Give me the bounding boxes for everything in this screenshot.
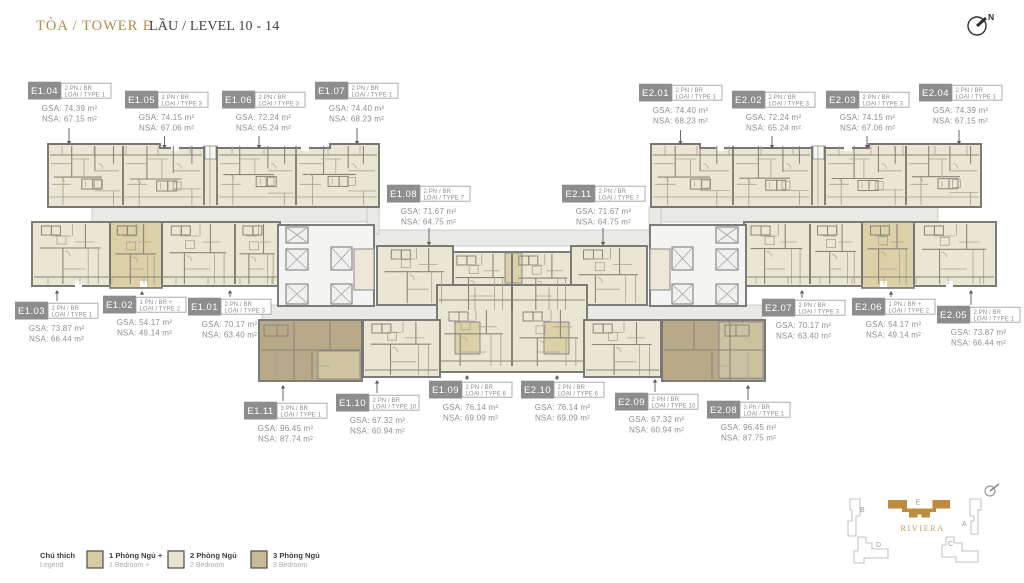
- svg-text:GSA: 74.15 m²: GSA: 74.15 m²: [139, 113, 195, 122]
- svg-text:NSA: 67.06 m²: NSA: 67.06 m²: [840, 124, 895, 133]
- svg-text:E1.05: E1.05: [128, 95, 155, 106]
- svg-text:LOẠI / TYPE 1: LOẠI / TYPE 1: [281, 412, 322, 418]
- svg-text:LOẠI / TYPE 3: LOẠI / TYPE 3: [225, 308, 266, 314]
- svg-text:2 PN / BR: 2 PN / BR: [956, 88, 984, 94]
- svg-text:E2.01: E2.01: [642, 88, 669, 99]
- svg-text:GSA: 96.45 m²: GSA: 96.45 m²: [721, 423, 777, 432]
- svg-text:E2.11: E2.11: [565, 189, 591, 200]
- svg-text:NSA: 69.09 m²: NSA: 69.09 m²: [443, 414, 498, 423]
- svg-text:2 PN / BR: 2 PN / BR: [373, 398, 401, 404]
- svg-text:RIVIERA: RIVIERA: [901, 524, 945, 533]
- svg-text:2 PN / BR: 2 PN / BR: [424, 189, 452, 195]
- svg-text:E1.08: E1.08: [390, 189, 417, 200]
- svg-text:E2.03: E2.03: [829, 95, 856, 106]
- svg-text:NSA: 49.14 m²: NSA: 49.14 m²: [117, 329, 172, 338]
- svg-text:NSA: 65.24 m²: NSA: 65.24 m²: [746, 124, 801, 133]
- svg-text:2 PN / BR: 2 PN / BR: [652, 397, 680, 403]
- svg-text:NSA: 68.23 m²: NSA: 68.23 m²: [329, 115, 384, 124]
- svg-text:GSA: 73.87 m²: GSA: 73.87 m²: [29, 324, 85, 333]
- svg-text:NSA: 66.44 m²: NSA: 66.44 m²: [29, 335, 84, 344]
- svg-text:2 Bedroom: 2 Bedroom: [190, 562, 224, 569]
- svg-text:E1.01: E1.01: [191, 302, 218, 313]
- svg-text:NSA: 64.75 m²: NSA: 64.75 m²: [401, 218, 456, 227]
- svg-text:NSA: 63.40 m²: NSA: 63.40 m²: [202, 331, 257, 340]
- svg-text:GSA: 67.32 m²: GSA: 67.32 m²: [350, 416, 406, 425]
- svg-text:E2.04: E2.04: [922, 88, 949, 99]
- svg-text:B: B: [860, 507, 865, 514]
- svg-text:LOẠI / TYPE 7: LOẠI / TYPE 7: [424, 195, 465, 201]
- svg-text:LOẠI / TYPE 1: LOẠI / TYPE 1: [974, 316, 1015, 322]
- svg-text:GSA: 74.40 m²: GSA: 74.40 m²: [329, 104, 385, 113]
- svg-text:GSA: 73.87 m²: GSA: 73.87 m²: [951, 328, 1007, 337]
- svg-text:NSA: 87.75 m²: NSA: 87.75 m²: [721, 434, 776, 443]
- svg-text:NSA: 63.40 m²: NSA: 63.40 m²: [776, 332, 831, 341]
- svg-text:GSA: 72.24 m²: GSA: 72.24 m²: [746, 113, 802, 122]
- svg-text:GSA: 67.32 m²: GSA: 67.32 m²: [629, 415, 685, 424]
- svg-text:E2.07: E2.07: [765, 303, 792, 314]
- svg-text:LOẠI / TYPE 1: LOẠI / TYPE 1: [676, 94, 717, 100]
- svg-text:GSA: 76.14 m²: GSA: 76.14 m²: [535, 403, 591, 412]
- svg-text:2 PN / BR: 2 PN / BR: [974, 310, 1002, 316]
- svg-text:1 PN / BR +: 1 PN / BR +: [889, 302, 922, 308]
- svg-text:2 PN / BR: 2 PN / BR: [225, 302, 253, 308]
- svg-text:2 PN / BR: 2 PN / BR: [799, 303, 827, 309]
- svg-text:2 Phòng Ngủ: 2 Phòng Ngủ: [190, 551, 237, 560]
- svg-text:TÒA / TOWER E: TÒA / TOWER E: [36, 17, 153, 34]
- svg-text:3 Ph / BR: 3 Ph / BR: [744, 405, 771, 411]
- svg-text:LOẠI / TYPE 3: LOẠI / TYPE 3: [799, 309, 840, 315]
- svg-text:GSA: 70.17 m²: GSA: 70.17 m²: [776, 321, 832, 330]
- svg-text:3 PN / BR: 3 PN / BR: [281, 406, 309, 412]
- svg-text:E2.05: E2.05: [940, 310, 967, 321]
- svg-text:GSA: 96.45 m²: GSA: 96.45 m²: [258, 424, 314, 433]
- svg-text:E1.04: E1.04: [31, 86, 58, 97]
- svg-text:E1.09: E1.09: [432, 385, 459, 396]
- svg-text:GSA: 54.17 m²: GSA: 54.17 m²: [866, 320, 922, 329]
- svg-text:2 PN / BR: 2 PN / BR: [599, 189, 627, 195]
- svg-text:LOẠI / TYPE 3: LOẠI / TYPE 3: [259, 101, 300, 107]
- svg-text:GSA: 74.40 m²: GSA: 74.40 m²: [653, 106, 709, 115]
- svg-text:2 PN / BR: 2 PN / BR: [676, 88, 704, 94]
- svg-text:N: N: [988, 12, 994, 22]
- svg-text:2 PN / BR: 2 PN / BR: [65, 86, 93, 92]
- svg-text:E1.03: E1.03: [18, 306, 45, 317]
- svg-text:NSA: 64.75 m²: NSA: 64.75 m²: [576, 218, 631, 227]
- svg-text:GSA: 54.17 m²: GSA: 54.17 m²: [117, 318, 173, 327]
- svg-text:E1.02: E1.02: [106, 300, 133, 311]
- svg-text:NSA: 68.23 m²: NSA: 68.23 m²: [653, 117, 708, 126]
- svg-text:NSA: 66.44 m²: NSA: 66.44 m²: [951, 339, 1006, 348]
- svg-text:E: E: [916, 500, 921, 507]
- svg-text:LOẠI / TYPE 2: LOẠI / TYPE 2: [889, 308, 930, 314]
- svg-text:E1.11: E1.11: [247, 406, 273, 417]
- svg-text:3 Bedroom: 3 Bedroom: [273, 562, 307, 569]
- svg-text:D: D: [876, 542, 881, 549]
- svg-text:E2.08: E2.08: [710, 405, 737, 416]
- svg-text:LOẠI / TYPE 6: LOẠI / TYPE 6: [466, 391, 507, 397]
- svg-text:3 Phòng Ngủ: 3 Phòng Ngủ: [273, 551, 320, 560]
- svg-text:LOẠI / TYPE 10: LOẠI / TYPE 10: [652, 403, 697, 409]
- svg-text:NSA: 67.15 m²: NSA: 67.15 m²: [42, 115, 97, 124]
- svg-text:2 PN / BR: 2 PN / BR: [466, 385, 494, 391]
- svg-text:LẦU / LEVEL 10 - 14: LẦU / LEVEL 10 - 14: [149, 17, 279, 34]
- svg-text:E2.02: E2.02: [735, 95, 762, 106]
- svg-text:LOẠI / TYPE 10: LOẠI / TYPE 10: [373, 404, 418, 410]
- svg-text:E2.09: E2.09: [618, 397, 645, 408]
- svg-text:NSA: 49.14 m²: NSA: 49.14 m²: [866, 331, 921, 340]
- svg-text:NSA: 67.15 m²: NSA: 67.15 m²: [933, 117, 988, 126]
- svg-text:NSA: 65.24 m²: NSA: 65.24 m²: [236, 124, 291, 133]
- svg-text:C: C: [948, 541, 953, 548]
- svg-text:GSA: 76.14 m²: GSA: 76.14 m²: [443, 403, 499, 412]
- svg-text:GSA: 74.39 m²: GSA: 74.39 m²: [933, 106, 989, 115]
- svg-text:2 PN / BR: 2 PN / BR: [558, 385, 586, 391]
- svg-text:LOẠI / TYPE 1: LOẠI / TYPE 1: [744, 411, 785, 417]
- svg-text:LOẠI / TYPE 1: LOẠI / TYPE 1: [65, 92, 106, 98]
- svg-text:2 PN / BR: 2 PN / BR: [352, 86, 380, 92]
- svg-text:NSA: 67.06 m²: NSA: 67.06 m²: [139, 124, 194, 133]
- svg-text:LOẠI / TYPE 2: LOẠI / TYPE 2: [140, 306, 181, 312]
- svg-text:2 PN / BR: 2 PN / BR: [769, 95, 797, 101]
- svg-text:NSA: 69.09 m²: NSA: 69.09 m²: [535, 414, 590, 423]
- svg-text:LOẠI / TYPE 7: LOẠI / TYPE 7: [599, 195, 640, 201]
- svg-text:2 PN / BR: 2 PN / BR: [863, 95, 891, 101]
- svg-text:A: A: [962, 521, 967, 528]
- svg-text:E1.07: E1.07: [318, 86, 345, 97]
- svg-text:LOẠI / TYPE 1: LOẠI / TYPE 1: [956, 94, 997, 100]
- svg-text:NSA: 60.94 m²: NSA: 60.94 m²: [629, 426, 684, 435]
- svg-text:E2.10: E2.10: [524, 385, 551, 396]
- svg-text:LOẠI / TYPE 6: LOẠI / TYPE 6: [558, 391, 599, 397]
- svg-text:E1.06: E1.06: [225, 95, 252, 106]
- svg-text:2 PN / BR: 2 PN / BR: [52, 306, 80, 312]
- svg-text:LOẠI / TYPE 1: LOẠI / TYPE 1: [52, 312, 93, 318]
- svg-text:1 Phòng Ngủ +: 1 Phòng Ngủ +: [109, 551, 163, 560]
- svg-text:GSA: 71.67 m²: GSA: 71.67 m²: [576, 207, 632, 216]
- svg-text:2 PN / BR: 2 PN / BR: [162, 95, 190, 101]
- svg-text:E2.06: E2.06: [855, 302, 882, 313]
- svg-text:GSA: 71.67 m²: GSA: 71.67 m²: [401, 207, 457, 216]
- svg-text:E1.10: E1.10: [339, 398, 366, 409]
- svg-text:GSA: 74.15 m²: GSA: 74.15 m²: [840, 113, 896, 122]
- svg-text:2 PN / BR: 2 PN / BR: [259, 95, 287, 101]
- svg-text:LOẠI / TYPE 3: LOẠI / TYPE 3: [769, 101, 810, 107]
- svg-text:LOẠI / TYPE 3: LOẠI / TYPE 3: [162, 101, 203, 107]
- svg-text:GSA: 70.17 m²: GSA: 70.17 m²: [202, 320, 258, 329]
- svg-text:GSA: 72.24 m²: GSA: 72.24 m²: [236, 113, 292, 122]
- svg-text:LOẠI / TYPE 3: LOẠI / TYPE 3: [863, 101, 904, 107]
- svg-text:1 Bedroom +: 1 Bedroom +: [109, 562, 149, 569]
- svg-text:Chú thích: Chú thích: [40, 551, 75, 560]
- svg-text:NSA: 87.74 m²: NSA: 87.74 m²: [258, 435, 313, 444]
- svg-text:Legend: Legend: [40, 562, 63, 569]
- svg-text:GSA: 74.39 m²: GSA: 74.39 m²: [42, 104, 98, 113]
- svg-text:NSA: 60.94 m²: NSA: 60.94 m²: [350, 427, 405, 436]
- svg-text:LOẠI / TYPE 1: LOẠI / TYPE 1: [352, 92, 393, 98]
- svg-text:1 PN / BR +: 1 PN / BR +: [140, 300, 173, 306]
